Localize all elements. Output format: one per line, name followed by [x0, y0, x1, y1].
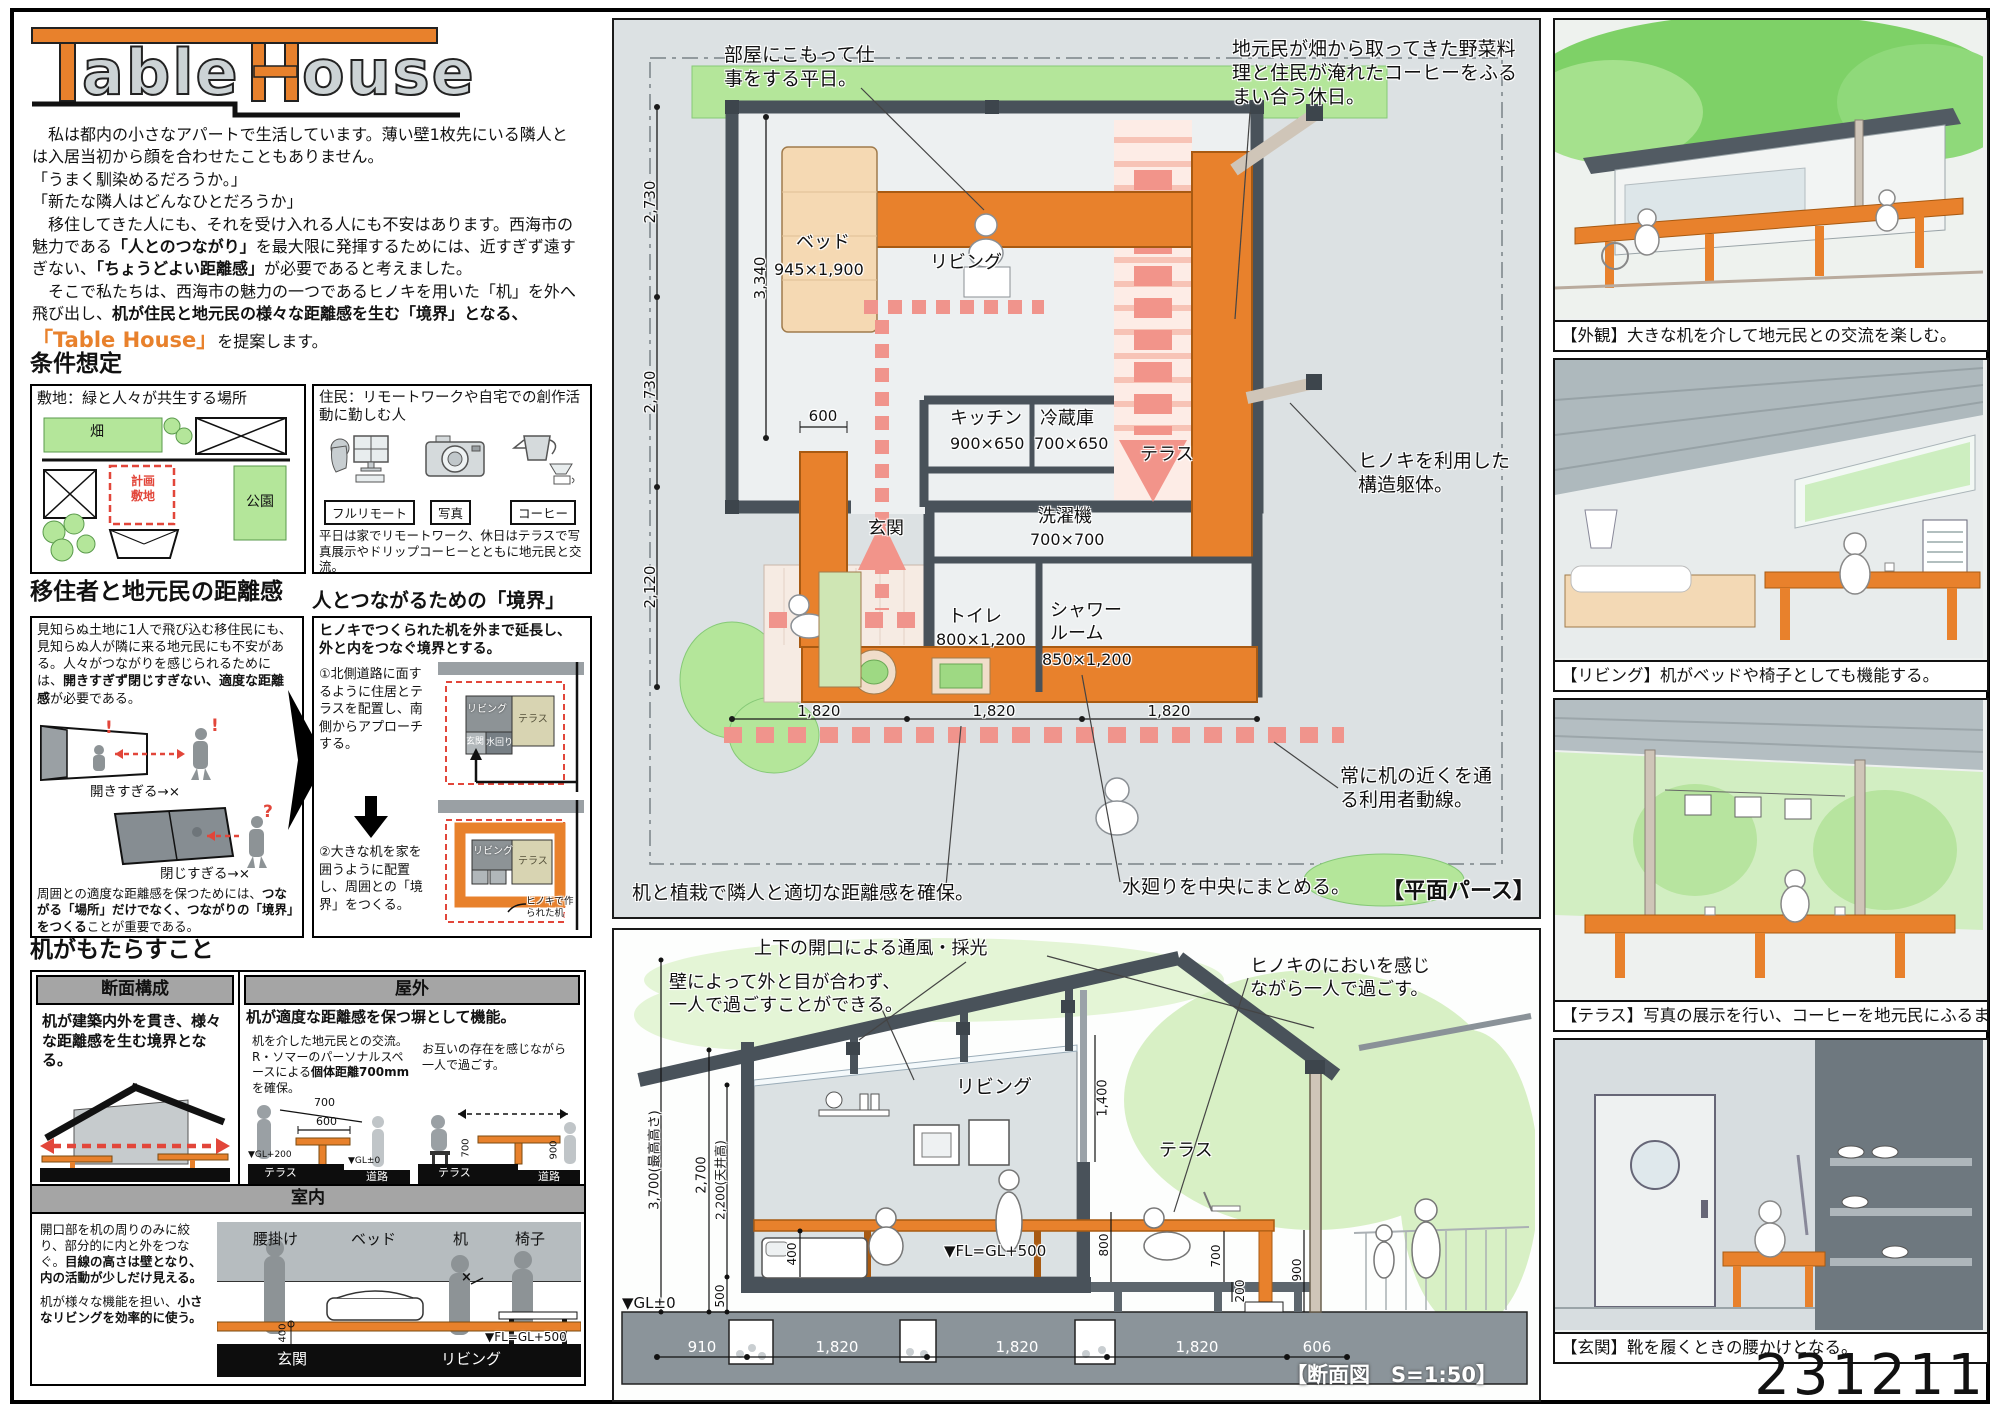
x-mark: × [461, 1270, 472, 1286]
plan-mizu-note: 水廻りを中央にまとめる。 [1122, 876, 1350, 900]
desk-effects-panel: 断面構成 屋外 机が建築内外を貫き、様々な距離感を生む境界となる。 机が適度な距… [30, 970, 586, 1386]
intro-p3: 「新たな隣人はどんなひとだろうか」 [32, 191, 582, 213]
entrance-sketch [1555, 1040, 1983, 1330]
intro-p2: 「うまく馴染めるだろうか。」 [32, 169, 582, 191]
closed-box-diagram: ? [57, 806, 297, 868]
open-box-icon [37, 722, 295, 782]
plan-work-note: 部屋にこもって仕 事をする平日。 [724, 44, 875, 92]
sec-fl-label: ▼FL=GL+500 [944, 1242, 1046, 1261]
sec-dim-h3: 2,200(天井高) [712, 1140, 729, 1220]
caption-living: 【リビング】机がベッドや椅子としても機能する。 [1555, 660, 1987, 690]
danmen-diagram [40, 1076, 230, 1182]
intro-p4e: が必要であると考えました。 [264, 259, 472, 278]
room-kitchen-size: 900×650 [950, 434, 1024, 454]
closed-box-icon [57, 806, 297, 868]
resident-box: 住民：リモートワークや自宅での創作活動に勤しむ人 フルリモート [312, 384, 592, 574]
shitsunai-p2: 机が様々な機能を担い、小さなリビングを効率的に使う。 [40, 1294, 210, 1326]
arrow-down-icon [354, 796, 388, 838]
bottom-genkan-label: 玄関 [277, 1350, 307, 1369]
boundary-diagram-1: リビング テラス 玄関 水回り [438, 662, 584, 792]
boundary-lead: ヒノキでつくられた机を外まで延長し、外と内をつなぐ境界とする。 [319, 622, 583, 658]
sec-dim-800: 800 [1097, 1234, 1111, 1257]
intro-p1: 私は都内の小さなアパートで生活しています。薄い壁1枚先にいる隣人とは入居当初から… [32, 124, 582, 169]
dim-600-label: 600 [316, 1115, 337, 1129]
room-living-label: リビング [930, 252, 1002, 275]
tag-coffee: コーヒー [510, 500, 576, 525]
hinoki-desk-note: ヒノキで作 られた机 [526, 896, 574, 920]
distance-box: 見知らぬ土地に1人で飛び込む移住民にも、見知らぬ人が隣に来る地元民にも不安がある… [30, 616, 304, 938]
tag-fullremote-label: フルリモート [332, 506, 407, 521]
open-box-diagram: ! ! [37, 722, 295, 782]
shitsunai-s1b: 目線の高さは壁となり、内の活動が少しだけ見える。 [40, 1254, 202, 1285]
sec-dim-200: 200 [1233, 1280, 1247, 1303]
question-mark: ? [263, 802, 273, 823]
diagram1-genkan-label: 玄関 [466, 737, 484, 748]
column-header-danmen: 断面構成 [36, 975, 234, 1005]
shitsunai-p1: 開口部を机の周りのみに絞り、部分的に内と外をつなぐ。目線の高さは壁となり、内の活… [40, 1222, 210, 1286]
boundary-diagram-2: リビング テラス ヒノキで作 られた机 [438, 800, 584, 930]
plan-caption: 【平面パース】 [1382, 878, 1535, 906]
plan-plant-note: 机と植栽で隣人と適切な距離感を確保。 [632, 882, 974, 906]
site-step1-icon [438, 662, 584, 792]
photo-panel-terrace: 【テラス】写真の展示を行い、コーヒーを地元民にふるまう。 [1553, 698, 1989, 1032]
diagram1-terrace-label: テラス [518, 714, 548, 727]
diagram1-living-label: リビング [467, 704, 507, 717]
plan-dim-b2: 1,820 [973, 702, 1016, 720]
sec-dim-b5: 606 [1303, 1338, 1332, 1356]
room-washer-size: 700×700 [1030, 530, 1104, 550]
site-box-title: 敷地：緑と人々が共生する場所 [37, 389, 247, 408]
intro-text: 私は都内の小さなアパートで生活しています。薄い壁1枚先にいる隣人とは入居当初から… [32, 124, 582, 355]
dim-400-label: 400 [278, 1323, 289, 1342]
distance-p2c: ことが重要である。 [87, 919, 199, 934]
caption-terrace: 【テラス】写真の展示を行い、コーヒーを地元民にふるまう。 [1555, 1000, 1987, 1030]
tag-fullremote: フルリモート [324, 500, 415, 525]
photo-panel-entrance: 【玄関】靴を履くときの腰かけとなる。 [1553, 1038, 1989, 1364]
shitsunai-s2a: 机が様々な機能を担い、 [40, 1294, 178, 1309]
intro-p5b: 机が住民と地元民の様々な距離感を生む「境界」となる、 [112, 304, 528, 323]
intro-p4: 移住してきた人にも、それを受け入れる人にも不安はあります。西海市の魅力である「人… [32, 214, 582, 281]
sec-dim-900: 900 [1290, 1259, 1304, 1282]
room-fridge-size: 700×650 [1034, 434, 1108, 454]
caption-too-closed: 閉じすぎる→× [160, 866, 250, 883]
room-terrace-label: テラス [1140, 444, 1194, 467]
sec-hinoki-note: ヒノキのにおいを感じ ながら一人で過ごす。 [1250, 956, 1430, 1001]
boundary-step1: ①北側道路に面するように住居とテラスを配置し、南側からアプローチする。 [319, 666, 431, 754]
distance-p2a: 周囲との適度な距離感を保つためには、 [37, 886, 262, 901]
panel-divider-v [238, 972, 240, 1184]
sec-terrace-label: テラス [1159, 1140, 1213, 1163]
tag-photo: 写真 [430, 500, 471, 525]
label-koshikake: 腰掛け [253, 1230, 298, 1249]
sec-gl-label: ▼GL±0 [622, 1294, 676, 1313]
label-bed: ベッド [351, 1230, 396, 1249]
okugai-right-diagram: 700 900 テラス 道路 [418, 1098, 580, 1184]
plan-dim-v3: 2,120 [641, 566, 659, 609]
sec-dim-b1: 910 [688, 1338, 717, 1356]
shitsunai-diagram: 腰掛け ベッド 机 椅子 × 400 ▼FL=GL+500 玄関 リビング [217, 1222, 581, 1377]
board-id-number: 231211 [1560, 1348, 1986, 1404]
sec-living-label: リビング [956, 1076, 1032, 1100]
site-box: 敷地：緑と人々が共生する場所 [30, 384, 306, 574]
plan-dim-b3: 1,820 [1148, 702, 1191, 720]
coffee-icon [510, 426, 580, 486]
remote-work-icon [328, 428, 398, 486]
exclamation-mark-1: ! [105, 718, 113, 739]
tag-photo-label: 写真 [438, 506, 463, 521]
road-ground-label: 道路 [366, 1170, 388, 1184]
sec-dim-b4: 1,820 [1176, 1338, 1219, 1356]
distance-p1c: が必要である。 [50, 692, 141, 707]
sec-dim-h2: 2,700 [695, 1156, 710, 1193]
column-header-okugai: 屋外 [244, 975, 580, 1005]
diagram2-living-label: リビング [473, 846, 513, 859]
intro-p4b: 「人とのつながり」 [112, 237, 256, 256]
floor-plan-panel: 部屋にこもって仕 事をする平日。 地元民が畑から取ってきた野菜料 理と住民が淹れ… [612, 18, 1541, 919]
sec-caption: 【断面図 S=1:50】 [1286, 1362, 1497, 1388]
field-label: 畑 [90, 424, 104, 442]
sec-dim-b2: 1,820 [816, 1338, 859, 1356]
danmen-text: 机が建築内外を貫き、様々な距離感を生む境界となる。 [42, 1012, 230, 1071]
terrace-ground-label: テラス [264, 1166, 297, 1180]
sec-wall-note: 壁によって外と目が合わず、 一人で過ごすことができる。 [669, 972, 903, 1017]
bottom-living-label: リビング [441, 1350, 501, 1369]
caption-exterior: 【外観】大きな机を介して地元民との交流を楽しむ。 [1555, 320, 1987, 350]
logo-ouse: ouse [302, 42, 476, 104]
caption-too-open: 開きすぎる→× [90, 784, 180, 801]
plan-dim-bed: 3,340 [751, 257, 769, 300]
room-bed-size: 945×1,900 [774, 260, 864, 280]
okugai-right-text: お互いの存在を感じながら一人で過ごす。 [422, 1042, 577, 1073]
resident-box-title: 住民：リモートワークや自宅での創作活動に勤しむ人 [319, 389, 583, 425]
distance-p2: 周囲との適度な距離感を保つためには、つながる「場所」だけでなく、つながりの「境界… [37, 886, 295, 935]
sec-dim-h1: 3,700(最高高さ) [644, 1110, 663, 1209]
room-kitchen-label: キッチン [950, 408, 1022, 431]
label-chair: 椅子 [515, 1230, 545, 1249]
planned-site-label: 計画 敷地 [123, 474, 163, 504]
living-sketch [1555, 360, 1983, 658]
boundary-step2: ②大きな机を家を囲うように配置し、周囲との「境界」をつくる。 [319, 844, 431, 914]
tag-coffee-label: コーヒー [518, 506, 568, 521]
plan-dim-v1: 2,730 [641, 181, 659, 224]
label-desk: 机 [453, 1230, 468, 1249]
sec-dim-400: 400 [785, 1243, 799, 1266]
park-label: 公園 [246, 494, 274, 512]
plan-hinoki-note: ヒノキを利用した 構造躯体。 [1358, 450, 1510, 498]
room-genkan-label: 玄関 [868, 518, 904, 541]
desk-effects-heading: 机がもたらすこと [30, 938, 214, 963]
shitsunai-text: 開口部を机の周りのみに絞り、部分的に内と外をつなぐ。目線の高さは壁となり、内の活… [40, 1222, 210, 1326]
section-drawing-panel: 上下の開口による通風・採光 壁によって外と目が合わず、 一人で過ごすことができる… [612, 928, 1541, 1402]
road-ground-label2: 道路 [538, 1170, 560, 1184]
okugai-left-diagram: 700 600 ▼GL+200 ▼GL±0 テラス 道路 [248, 1098, 410, 1184]
dim-700-label: 700 [314, 1096, 335, 1110]
photo-panel-exterior: 【外観】大きな机を介して地元民との交流を楽しむ。 [1553, 18, 1989, 352]
intro-p6b: を提案します。 [217, 332, 327, 351]
site-map-icon [38, 412, 296, 564]
diagram2-terrace-label: テラス [518, 856, 548, 869]
okugai-left-b: 個体距離700mm [311, 1065, 409, 1079]
fl-label: ▼FL=GL+500 [485, 1330, 567, 1345]
site-diagram: 畑 計画 敷地 公園 [38, 412, 296, 564]
diagram1-mizumawari-label: 水回り [486, 738, 513, 749]
exclamation-mark-2: ! [211, 716, 219, 737]
room-toilet-label: トイレ [948, 606, 1002, 629]
intro-p4d: 「ちょうどよい距離感」 [96, 259, 264, 278]
plan-dim-600: 600 [809, 407, 838, 425]
okugai-lead: 机が適度な距離感を保つ塀として機能。 [246, 1008, 581, 1027]
terrace-sketch [1555, 700, 1983, 998]
plan-flow-note: 常に机の近くを通 る利用者動線。 [1340, 765, 1492, 813]
camera-icon [422, 430, 488, 484]
room-fridge-label: 冷蔵庫 [1040, 408, 1094, 431]
room-shower-size: 850×1,200 [1042, 650, 1132, 670]
title-logo: able ouse [30, 22, 470, 122]
room-washer-label: 洗濯機 [1038, 506, 1092, 529]
logo-t-icon [60, 43, 75, 101]
terrace-ground-label2: テラス [438, 1166, 471, 1180]
plan-dim-v2: 2,730 [641, 371, 659, 414]
okugai-left-text: 机を介した地元民との交流。R・ソマーのパーソナルスペースによる個体距離700mm… [252, 1034, 412, 1096]
intro-proposal-name: 「Table House」 [32, 328, 217, 352]
row-header-shitsunai: 室内 [30, 1184, 586, 1214]
okugai-left-c: を確保。 [252, 1081, 300, 1095]
boundary-heading: 人とつながるための「境界」 [312, 584, 565, 613]
room-bed-label: ベッド [796, 232, 850, 255]
dim-900-label: 900 [549, 1140, 560, 1159]
room-toilet-size: 800×1,200 [936, 630, 1026, 650]
dim-700v-label: 700 [461, 1138, 472, 1157]
sec-dim-700: 700 [1209, 1245, 1223, 1268]
plan-dim-b1: 1,820 [798, 702, 841, 720]
gl0-label: ▼GL±0 [348, 1156, 380, 1167]
sec-vent-note: 上下の開口による通風・採光 [754, 938, 987, 961]
conditions-heading: 条件想定 [30, 352, 122, 377]
sec-dim-500: 500 [713, 1285, 727, 1308]
boundary-box: ヒノキでつくられた机を外まで延長し、外と内をつなぐ境界とする。 ①北側道路に面す… [312, 616, 592, 938]
photo-panel-living: 【リビング】机がベッドや椅子としても機能する。 [1553, 358, 1989, 692]
exterior-sketch [1555, 20, 1983, 318]
intro-p5: そこで私たちは、西海市の魅力の一つであるヒノキを用いた「机」を外へ飛び出し、机が… [32, 281, 582, 326]
distance-p1: 見知らぬ土地に1人で飛び込む移住民にも、見知らぬ人が隣に来る地元民にも不安がある… [37, 622, 295, 708]
gl200-label: ▼GL+200 [248, 1150, 292, 1161]
sec-dim-1400: 1,400 [1096, 1079, 1111, 1116]
distance-heading: 移住者と地元民の距離感 [30, 580, 283, 605]
plan-holiday-note: 地元民が畑から取ってきた野菜料 理と住民が淹れたコーヒーをふる まい合う休日。 [1232, 38, 1517, 109]
house-section-icon [40, 1076, 230, 1182]
presentation-board: able ouse 私は都内の小さなアパートで生活しています。薄い壁1枚先にいる… [0, 0, 2000, 1410]
logo-able: able [82, 42, 240, 104]
room-shower-label: シャワー ルーム [1050, 600, 1122, 645]
resident-caption: 平日は家でリモートワーク、休日はテラスで写真展示やドリップコーヒーとともに地元民… [319, 528, 585, 575]
sec-dim-b3: 1,820 [996, 1338, 1039, 1356]
